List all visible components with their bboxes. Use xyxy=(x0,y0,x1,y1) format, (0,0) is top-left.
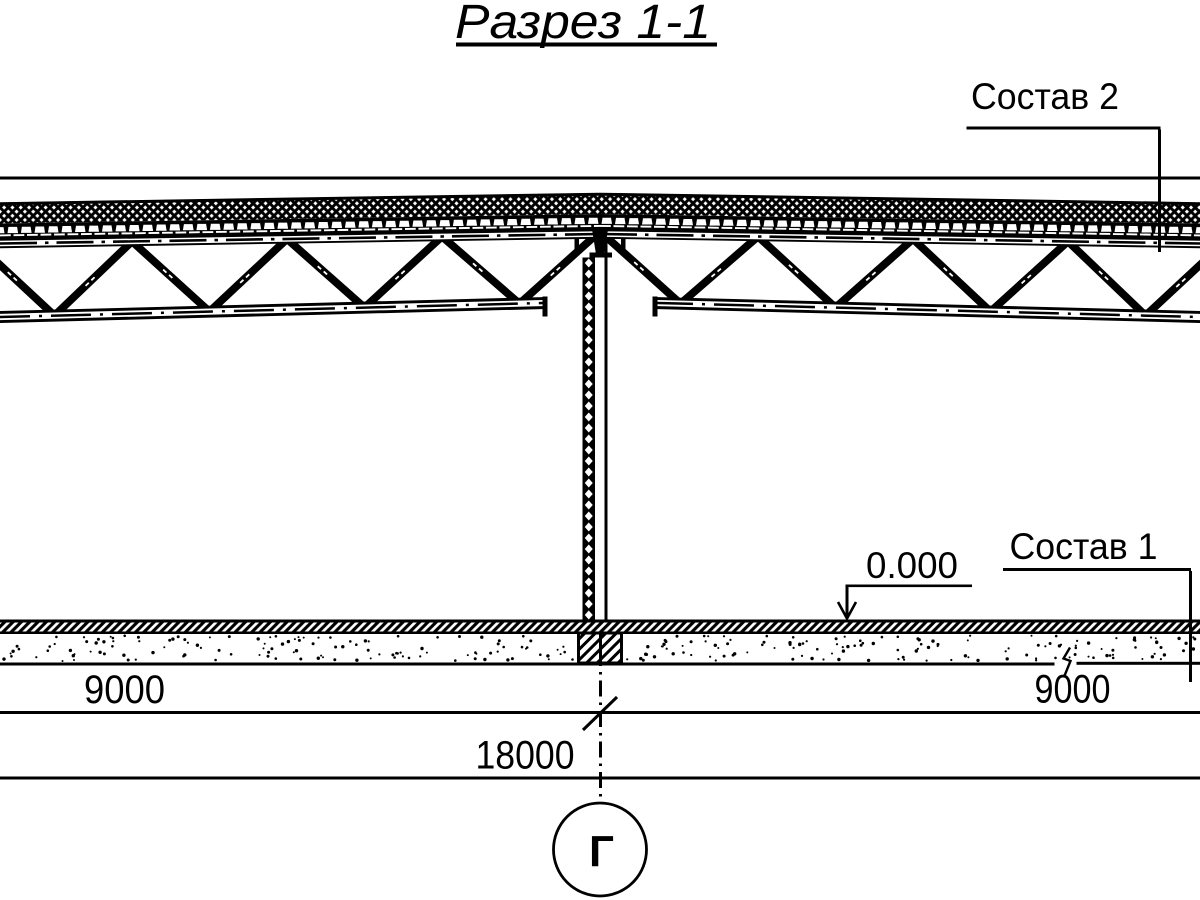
svg-text:9000: 9000 xyxy=(1035,668,1111,712)
svg-text:Состав 2: Состав 2 xyxy=(971,75,1119,117)
svg-text:18000: 18000 xyxy=(476,734,575,778)
svg-text:Г: Г xyxy=(589,827,614,876)
svg-text:9000: 9000 xyxy=(84,668,165,712)
svg-text:Разрез 1-1: Разрез 1-1 xyxy=(455,0,711,49)
svg-text:Состав 1: Состав 1 xyxy=(1010,525,1158,567)
svg-text:0.000: 0.000 xyxy=(866,545,958,586)
